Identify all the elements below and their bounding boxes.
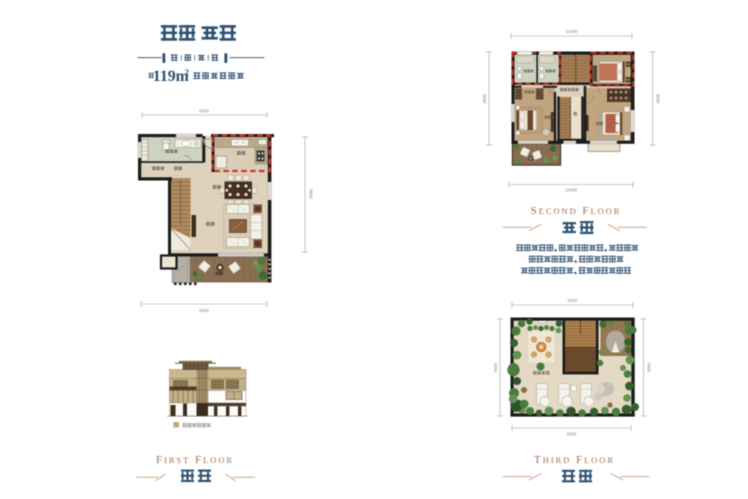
svg-text:6000: 6000: [199, 109, 209, 114]
svg-text:6000: 6000: [199, 308, 209, 313]
svg-text:SECOND FLOOR: SECOND FLOOR: [531, 205, 622, 217]
svg-text:2: 2: [185, 67, 189, 77]
svg-text:119m: 119m: [153, 68, 189, 85]
svg-text:FIRST FLOOR: FIRST FLOOR: [156, 454, 234, 466]
svg-text:9800: 9800: [656, 94, 661, 104]
svg-text:9300: 9300: [568, 298, 578, 303]
svg-text:8400: 8400: [493, 362, 498, 372]
svg-text:8800: 8800: [309, 189, 314, 199]
svg-text:9800: 9800: [482, 93, 487, 103]
svg-text:10480: 10480: [565, 188, 578, 193]
svg-text:10480: 10480: [565, 29, 578, 34]
svg-text:THIRD FLOOR: THIRD FLOOR: [534, 454, 615, 466]
svg-text:8400: 8400: [647, 363, 652, 373]
svg-text:9300: 9300: [567, 432, 577, 437]
